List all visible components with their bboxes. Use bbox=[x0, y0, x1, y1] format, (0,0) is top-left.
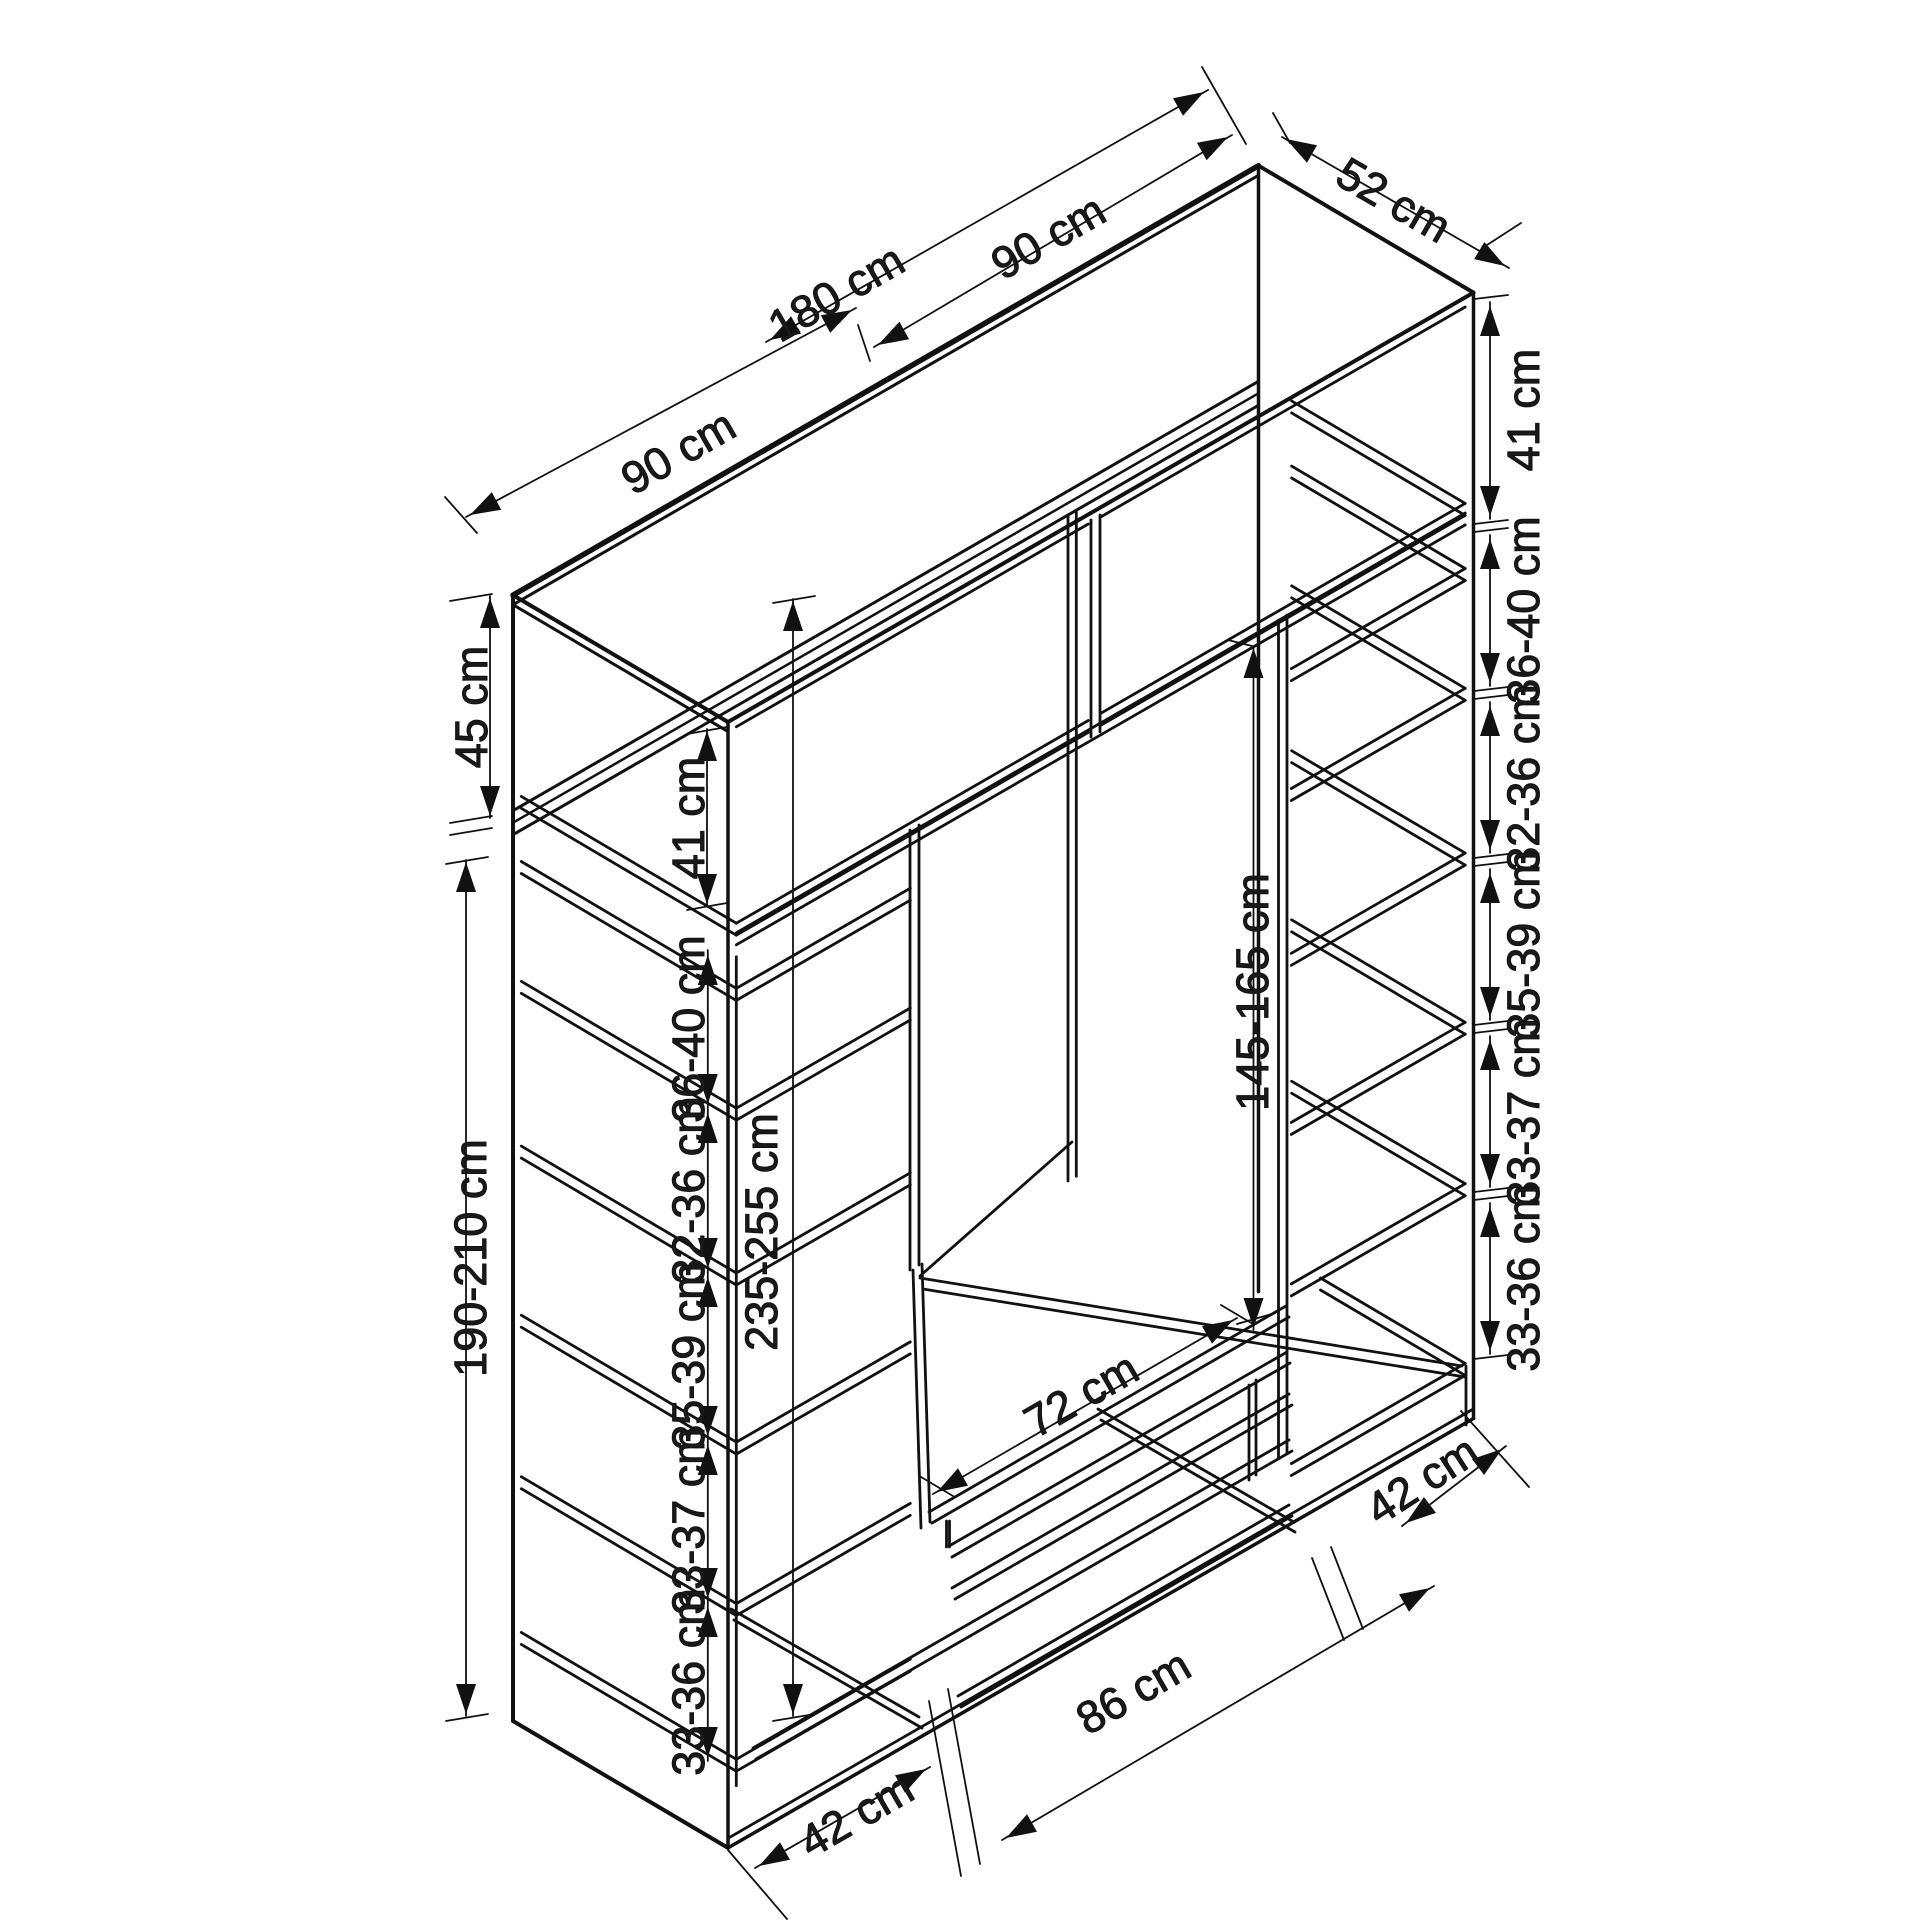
svg-text:190-210 cm: 190-210 cm bbox=[445, 1139, 496, 1377]
svg-text:33-37 cm: 33-37 cm bbox=[663, 1427, 714, 1615]
svg-text:32-36 cm: 32-36 cm bbox=[663, 1096, 714, 1284]
svg-text:36-40 cm: 36-40 cm bbox=[1498, 516, 1549, 704]
svg-text:36-40 cm: 36-40 cm bbox=[663, 935, 714, 1123]
svg-text:145-165 cm: 145-165 cm bbox=[1227, 873, 1278, 1111]
svg-text:33-37 cm: 33-37 cm bbox=[1498, 1018, 1549, 1206]
svg-text:35-39 cm: 35-39 cm bbox=[1498, 850, 1549, 1038]
svg-text:41 cm: 41 cm bbox=[1498, 349, 1549, 472]
svg-text:32-36 cm: 32-36 cm bbox=[1498, 684, 1549, 872]
svg-text:33-36 cm: 33-36 cm bbox=[663, 1588, 714, 1776]
svg-text:41 cm: 41 cm bbox=[663, 757, 714, 880]
svg-text:35-39 cm: 35-39 cm bbox=[663, 1262, 714, 1450]
svg-text:33-36 cm: 33-36 cm bbox=[1498, 1184, 1549, 1372]
svg-text:45 cm: 45 cm bbox=[446, 646, 497, 769]
svg-text:235-255 cm: 235-255 cm bbox=[736, 1113, 787, 1351]
